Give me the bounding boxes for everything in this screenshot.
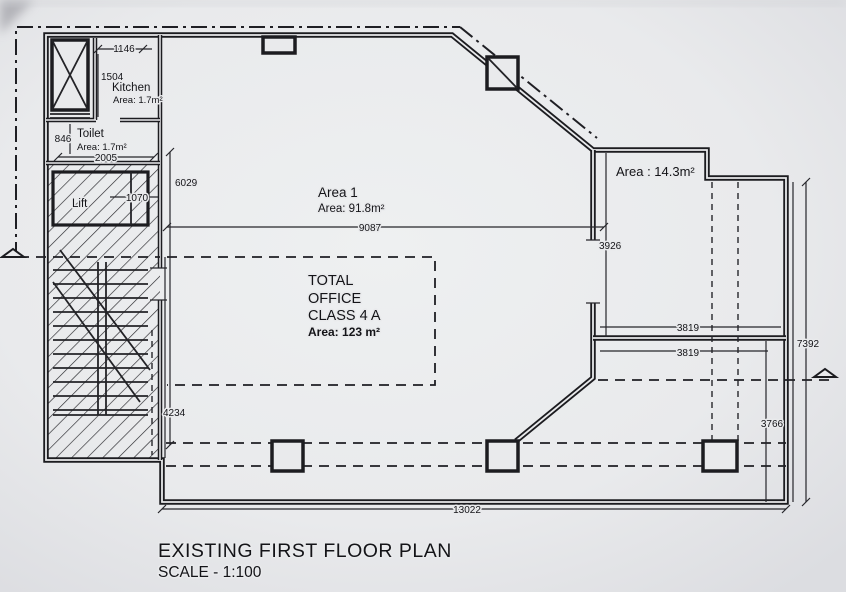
dim-3766: 3766 <box>761 419 784 430</box>
area1-label: Area 1 <box>318 185 358 200</box>
dim-3926: 3926 <box>599 241 622 252</box>
toilet-area-label: Area: 1.7m² <box>77 142 127 153</box>
drawing-title: EXISTING FIRST FLOOR PLAN <box>158 540 452 562</box>
office-area-label: Area: 123 m² <box>308 325 380 339</box>
kitchen-area-label: Area: 1.7m² <box>113 95 163 106</box>
dim-1070: 1070 <box>126 193 149 204</box>
dim-13022: 13022 <box>453 505 481 516</box>
area1-area-label: Area: 91.8m² <box>318 203 385 215</box>
column <box>272 441 303 471</box>
dim-1146: 1146 <box>113 44 135 55</box>
dim-2005: 2005 <box>95 153 118 164</box>
column <box>703 441 737 471</box>
office-label-class: CLASS 4 A <box>308 308 381 324</box>
dim-846: 846 <box>55 134 72 145</box>
dim-3819-lower: 3819 <box>677 348 700 359</box>
lift-shaft <box>50 40 90 118</box>
wall-pier <box>263 37 295 53</box>
office-label-total: TOTAL <box>308 273 353 289</box>
dim-3819-upper: 3819 <box>677 323 700 334</box>
dim-6029: 6029 <box>175 178 198 189</box>
drawing-scale: SCALE - 1:100 <box>158 564 262 581</box>
office-label-office: OFFICE <box>308 291 361 307</box>
area2-label: Area : 14.3m² <box>616 164 695 179</box>
diagonal-column <box>487 57 518 89</box>
floor-plan-drawing: 1146 1504 Kitchen Area: 1.7m² Toilet 846… <box>0 0 846 592</box>
toilet-label: Toilet <box>77 128 105 140</box>
column <box>487 441 518 471</box>
dim-9087: 9087 <box>359 223 382 234</box>
kitchen-label: Kitchen <box>112 82 150 94</box>
dim-4234: 4234 <box>163 408 186 419</box>
stair-lift-block <box>46 165 160 460</box>
lift-label: Lift <box>72 198 88 210</box>
dim-7392: 7392 <box>797 339 820 350</box>
